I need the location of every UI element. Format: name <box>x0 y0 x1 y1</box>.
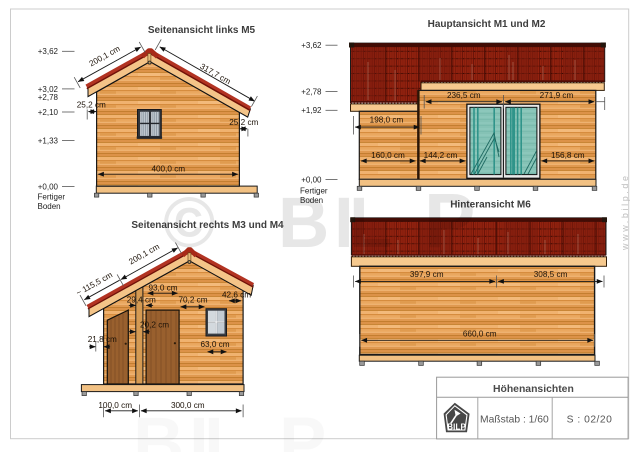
svg-text:©BILP: ©BILP <box>163 178 475 264</box>
svg-text:198,0 cm: 198,0 cm <box>370 116 404 125</box>
svg-text:+3,62: +3,62 <box>301 41 322 50</box>
svg-text:Boden: Boden <box>38 202 61 211</box>
svg-text:25,2 cm: 25,2 cm <box>77 100 106 109</box>
svg-text:Seitenansicht links M5: Seitenansicht links M5 <box>148 25 256 36</box>
svg-text:+1,33: +1,33 <box>38 136 59 145</box>
svg-text:42,6 cm: 42,6 cm <box>222 291 251 300</box>
svg-text:+1,92: +1,92 <box>301 106 322 115</box>
svg-text:308,5 cm: 308,5 cm <box>534 270 568 279</box>
svg-text:93,0 cm: 93,0 cm <box>148 284 177 293</box>
svg-text:156,8 cm: 156,8 cm <box>551 151 585 160</box>
svg-text:Maßstab : 1/60: Maßstab : 1/60 <box>480 415 549 426</box>
svg-text:Fertiger: Fertiger <box>38 192 66 201</box>
svg-text:29,4 cm: 29,4 cm <box>127 296 156 305</box>
svg-text:www.bilp.de: www.bilp.de <box>620 173 630 251</box>
svg-text:144,2 cm: 144,2 cm <box>424 151 458 160</box>
svg-text:660,0 cm: 660,0 cm <box>463 329 497 338</box>
svg-text:+2,10: +2,10 <box>38 108 59 117</box>
svg-text:Höhenansichten: Höhenansichten <box>493 384 574 395</box>
svg-text:397,9 cm: 397,9 cm <box>410 270 444 279</box>
svg-text:+2,78: +2,78 <box>38 93 59 102</box>
svg-text:21,8 cm: 21,8 cm <box>88 335 117 344</box>
svg-text:Hauptansicht M1 und M2: Hauptansicht M1 und M2 <box>428 19 546 30</box>
svg-text:400,0 cm: 400,0 cm <box>151 165 185 174</box>
svg-text:63,0 cm: 63,0 cm <box>200 340 229 349</box>
svg-text:+2,78: +2,78 <box>301 87 322 96</box>
svg-text:160,0 cm: 160,0 cm <box>371 151 405 160</box>
svg-text:25,2 cm: 25,2 cm <box>229 118 258 127</box>
svg-text:236,5 cm: 236,5 cm <box>447 91 481 100</box>
svg-text:BILP: BILP <box>447 423 466 432</box>
svg-text:+3,62: +3,62 <box>38 47 59 56</box>
svg-text:70,2 cm: 70,2 cm <box>178 296 207 305</box>
svg-text:20,2 cm: 20,2 cm <box>140 321 169 330</box>
svg-text:271,9 cm: 271,9 cm <box>540 91 574 100</box>
svg-text:+0,00: +0,00 <box>38 182 59 191</box>
svg-text:S : 02/20: S : 02/20 <box>567 415 613 426</box>
